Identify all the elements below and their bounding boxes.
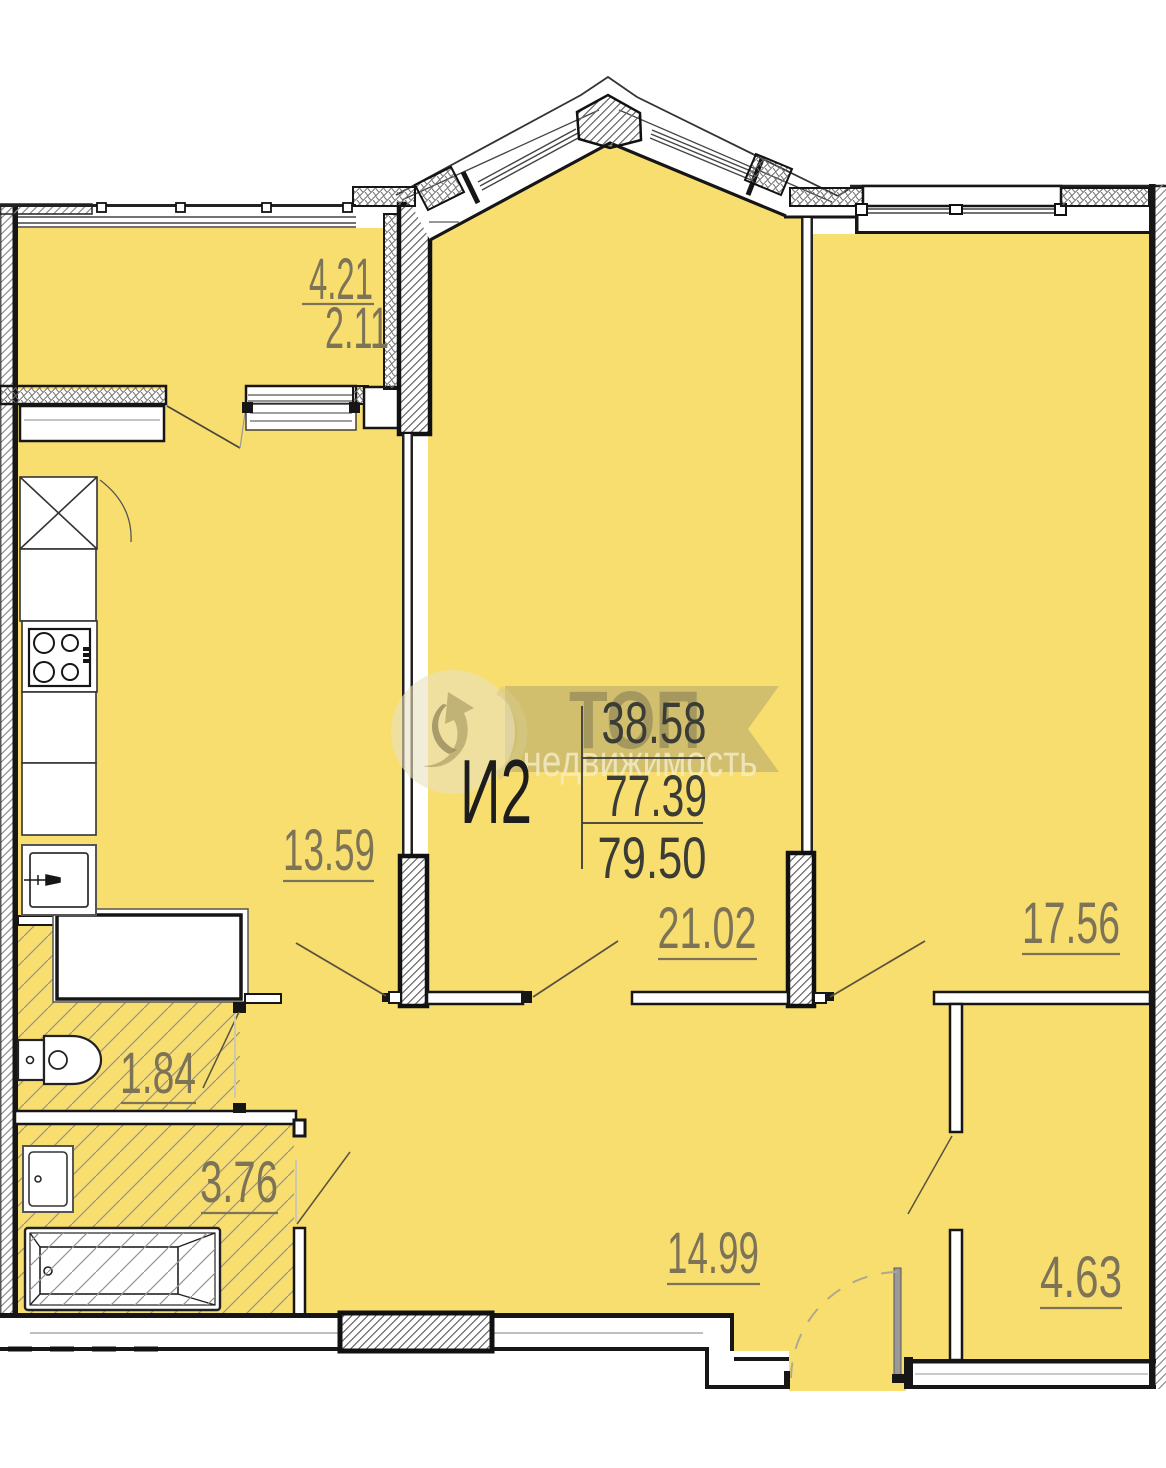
- svg-text:38.58: 38.58: [602, 691, 707, 756]
- svg-text:77.39: 77.39: [605, 764, 707, 829]
- svg-text:13.59: 13.59: [283, 818, 375, 883]
- svg-text:79.50: 79.50: [598, 826, 707, 891]
- svg-text:2.11: 2.11: [325, 296, 389, 361]
- svg-text:17.56: 17.56: [1022, 891, 1120, 956]
- svg-text:И2: И2: [460, 742, 532, 843]
- svg-text:21.02: 21.02: [658, 896, 757, 961]
- svg-text:14.99: 14.99: [667, 1221, 759, 1286]
- svg-text:1.84: 1.84: [120, 1041, 196, 1106]
- svg-text:3.76: 3.76: [200, 1150, 278, 1215]
- svg-text:4.63: 4.63: [1040, 1245, 1122, 1310]
